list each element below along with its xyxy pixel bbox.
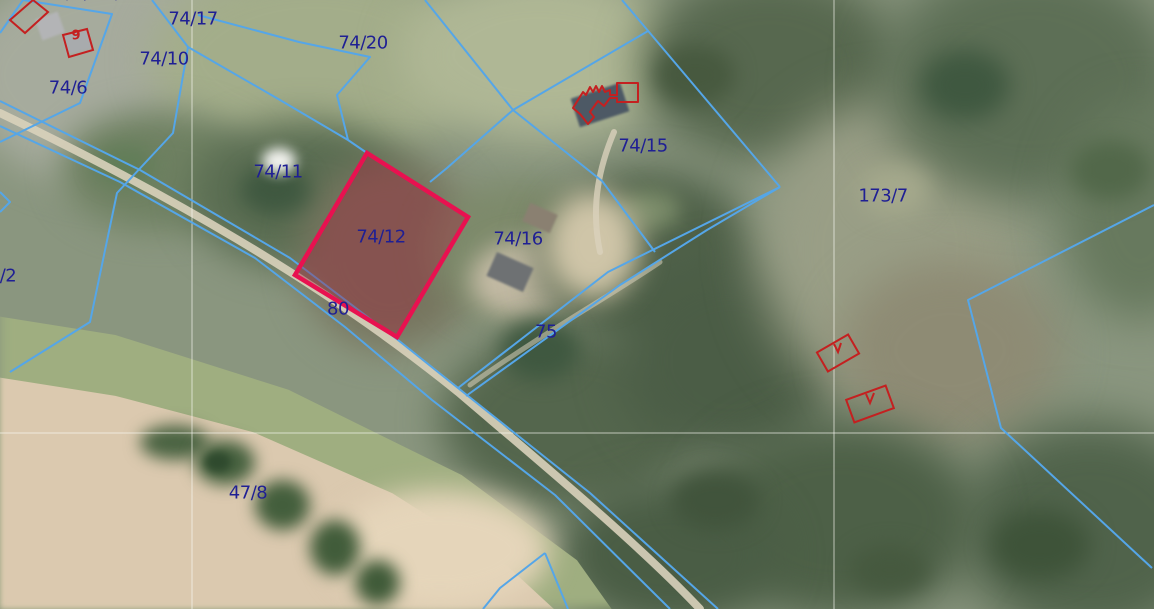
parcel-labels-layer: 74/1774/1074/674/2074/1174/1274/1674/151…: [0, 0, 1154, 609]
parcel-label--2: /2: [0, 266, 16, 287]
parcel-label-74-10: 74/10: [139, 49, 188, 70]
parcel-label-74-8-74-9: 74/8, 74/9: [44, 0, 131, 4]
parcel-label-74-6: 74/6: [49, 78, 87, 99]
parcel-label-74-11: 74/11: [253, 162, 302, 183]
parcel-label-47-8: 47/8: [229, 483, 267, 504]
map-canvas[interactable]: 74/1774/1074/674/2074/1174/1274/1674/151…: [0, 0, 1154, 609]
parcel-label-74-16: 74/16: [493, 229, 542, 250]
parcel-label-74-12: 74/12: [356, 227, 405, 248]
building-number-label: 9: [71, 29, 80, 44]
parcel-label-75: 75: [535, 322, 557, 343]
parcel-label-74-20: 74/20: [338, 33, 387, 54]
parcel-label-74-17: 74/17: [168, 9, 217, 30]
parcel-label-173-7: 173/7: [858, 186, 907, 207]
parcel-label-74-15: 74/15: [618, 136, 667, 157]
parcel-label-80: 80: [327, 299, 349, 320]
